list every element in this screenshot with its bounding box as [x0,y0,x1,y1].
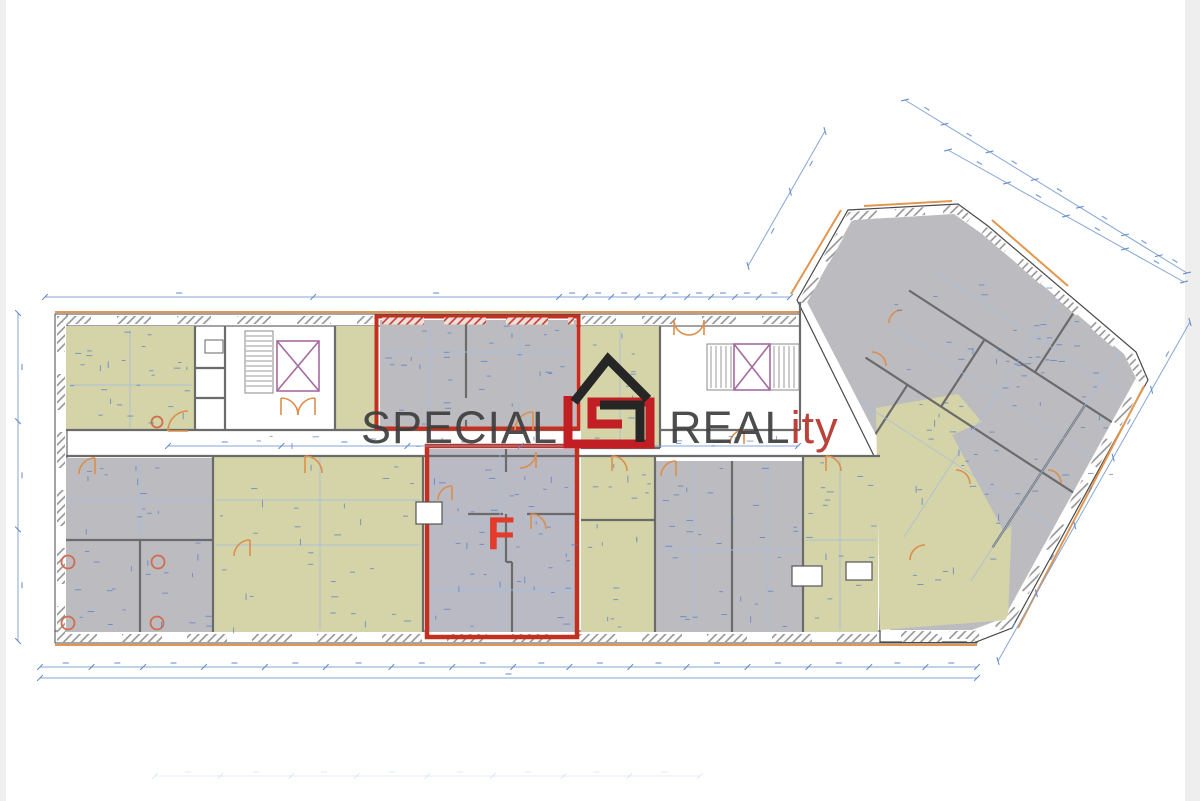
room-fills [66,214,1136,632]
elevator-shaft [734,344,770,390]
floor-plan-page: F [0,0,1200,801]
shaft-box [205,340,223,353]
floor-plan-drawing: F [0,0,1200,801]
elevator-shaft [277,341,319,391]
stair-core-left [205,331,319,393]
stair-core-right [707,344,799,390]
unit-label: F [487,507,515,559]
